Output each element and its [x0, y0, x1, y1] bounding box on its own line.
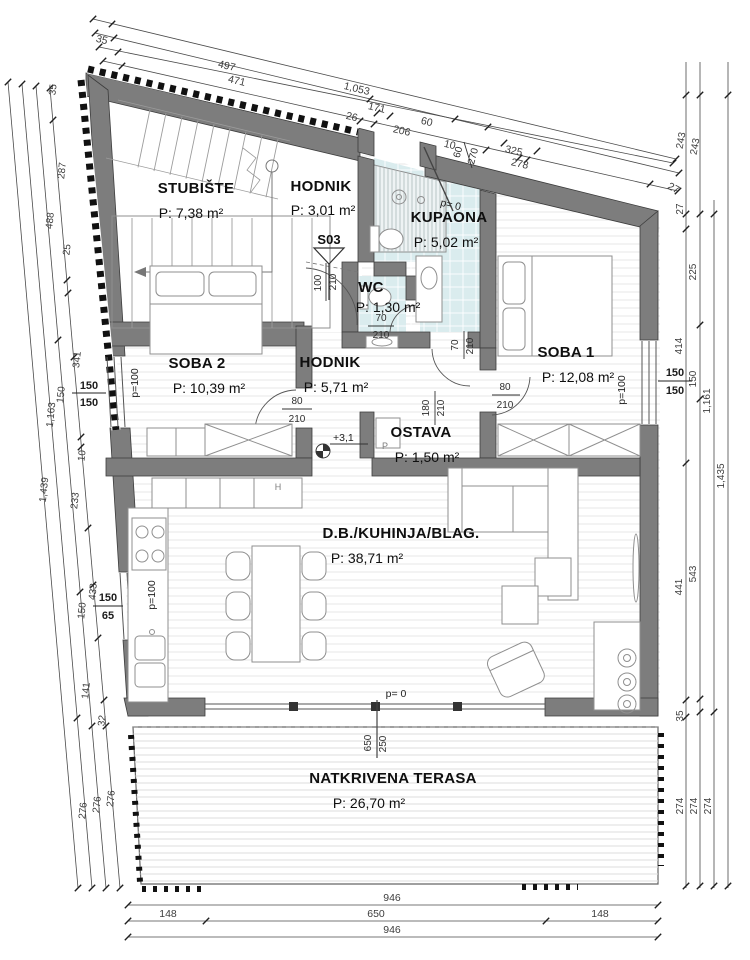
level-label-living: +3,1 [333, 432, 354, 444]
room-label-dnevni: D.B./KUHINJA/BLAG. [322, 525, 479, 542]
dim-label: 1,435 [716, 463, 727, 488]
bed-room1 [498, 256, 612, 356]
dim-label: 276 [77, 801, 90, 819]
dim-label: 1,163 [45, 401, 59, 427]
door-width: 70 [375, 313, 387, 324]
room-label-wc: WC [358, 279, 384, 296]
room-area-hodnik-mid: P: 5,71 m² [304, 379, 369, 395]
dining-table [226, 546, 326, 662]
dim-label: 148 [159, 908, 177, 920]
room-label-kupaona: KUPAONA [411, 209, 488, 226]
dim-label: 150 [688, 370, 699, 387]
floor-plan-page: STUBIŠTE P: 7,38 m² HODNIK P: 3,01 m² KU… [0, 0, 750, 960]
room-area-kupaona: P: 5,02 m² [414, 234, 479, 250]
floor-plan-drawing: STUBIŠTE P: 7,38 m² HODNIK P: 3,01 m² KU… [0, 0, 750, 960]
door-width: 80 [499, 382, 511, 393]
room-area-hodnik-top: P: 3,01 m² [291, 202, 356, 218]
dim-label: 243 [689, 137, 703, 156]
door-height: 210 [373, 330, 390, 341]
dim-label: 27 [665, 180, 681, 196]
dim-label: 141 [80, 681, 93, 699]
room-label-stubiste: STUBIŠTE [158, 179, 235, 197]
window-height: 150 [666, 385, 684, 397]
door-height: 210 [436, 399, 447, 416]
dim-label: 287 [56, 161, 69, 179]
dim-label: 225 [688, 263, 699, 280]
dim-label: 414 [674, 337, 685, 354]
dim-label: 148 [591, 908, 609, 920]
appliance-label-p: P [382, 441, 388, 451]
room-area-stubiste: P: 7,38 m² [159, 205, 224, 221]
dim-label: 341 [71, 350, 84, 368]
door-height: 210 [289, 414, 306, 425]
armchair [485, 639, 547, 699]
dim-label: 471 [227, 73, 247, 89]
section-label: S03 [317, 232, 340, 247]
room-label-soba2: SOBA 2 [168, 355, 225, 372]
door-width: 80 [291, 396, 303, 407]
parapet-label: p=100 [616, 375, 628, 405]
window-height: 65 [102, 610, 114, 622]
room-label-ostava: OSTAVA [391, 424, 452, 441]
room-area-soba2: P: 10,39 m² [173, 380, 246, 396]
dim-label: 27 [675, 203, 686, 215]
dim-label: 233 [69, 491, 82, 509]
level-label-terrace: p= 0 [386, 688, 407, 700]
dim-label: 206 [392, 123, 412, 139]
dim-label: 441 [674, 578, 685, 595]
dim-label: 274 [689, 797, 700, 814]
door-height: 210 [328, 273, 339, 290]
coffee-tables [502, 558, 571, 624]
window-width: 150 [80, 380, 98, 392]
room-area-terasa: P: 26,70 m² [333, 795, 406, 811]
media-cabinet [594, 622, 640, 713]
room-label-hodnik-top: HODNIK [291, 178, 352, 195]
dim-label: 276 [91, 795, 104, 813]
dim-label: 243 [675, 131, 689, 150]
dim-label: 35 [95, 33, 109, 47]
dim-label: 274 [675, 797, 686, 814]
dim-label: 60 [420, 115, 434, 129]
room-label-hodnik-mid: HODNIK [300, 354, 361, 371]
dim-label: 543 [688, 565, 699, 582]
window-width: 150 [666, 367, 684, 379]
door-width: 70 [450, 339, 461, 351]
room-area-wc: P: 1,30 m² [356, 299, 421, 315]
window-height: 150 [80, 397, 98, 409]
door-width: 180 [421, 399, 432, 416]
room-label-terasa: NATKRIVENA TERASA [309, 770, 477, 787]
dim-label: 32 [96, 714, 108, 727]
dim-label: 1,161 [702, 388, 713, 413]
room-area-soba1: P: 12,08 m² [542, 369, 615, 385]
door-height: 210 [465, 337, 476, 354]
dim-label: 10 [76, 449, 88, 462]
dim-label: 488 [44, 211, 57, 229]
door-height: 270 [466, 146, 481, 165]
window-label-room1: 150 150 [658, 367, 692, 397]
tv [633, 534, 639, 602]
window-width: 150 [99, 592, 117, 604]
door-width: 60 [452, 145, 466, 159]
dim-label: 274 [703, 797, 714, 814]
dim-label: 26 [345, 110, 359, 124]
dim-label: 35 [47, 83, 59, 96]
dim-label: 25 [61, 243, 73, 256]
appliance-label-h: H [275, 482, 282, 492]
door-width: 650 [363, 734, 374, 751]
door-height: 250 [378, 735, 389, 752]
room-area-dnevni: P: 38,71 m² [331, 550, 404, 566]
room-label-soba1: SOBA 1 [537, 344, 594, 361]
dim-label: 946 [383, 924, 401, 936]
door-label-room2: 80 210 [282, 396, 312, 425]
dim-label: 276 [105, 789, 118, 807]
wardrobe-room2 [147, 424, 292, 456]
room-area-ostava: P: 1,50 m² [395, 449, 460, 465]
parapet-label: p=100 [129, 368, 141, 398]
dim-label: 278 [510, 156, 530, 172]
dim-label: 650 [367, 908, 385, 920]
dim-label: 150 [76, 601, 89, 619]
dim-label: 946 [383, 892, 401, 904]
dim-label: 35 [675, 710, 686, 722]
dim-label: 1,439 [38, 476, 52, 502]
door-width: 100 [313, 274, 324, 291]
bed-room2 [150, 266, 262, 354]
sliding-door-terrace [205, 702, 545, 711]
door-height: 210 [497, 400, 514, 411]
wardrobe-room1 [498, 424, 640, 456]
parapet-label: p=100 [146, 580, 158, 610]
dim-label: 150 [55, 385, 68, 403]
